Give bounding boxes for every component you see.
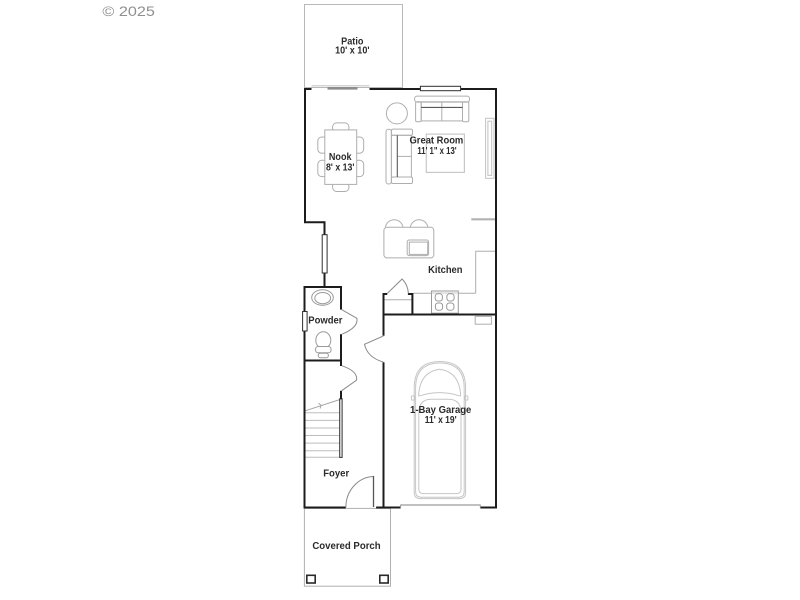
svg-text:Powder: Powder (308, 315, 342, 326)
svg-text:Foyer: Foyer (323, 469, 349, 480)
svg-text:Covered Porch: Covered Porch (312, 541, 380, 552)
svg-text:8' x 13': 8' x 13' (326, 163, 355, 174)
svg-text:10' x 10': 10' x 10' (335, 46, 369, 57)
svg-text:© 2025: © 2025 (102, 3, 155, 19)
svg-text:Kitchen: Kitchen (428, 265, 462, 276)
svg-text:11' x 19': 11' x 19' (425, 415, 457, 426)
svg-text:11' 1" x 13': 11' 1" x 13' (417, 146, 456, 157)
